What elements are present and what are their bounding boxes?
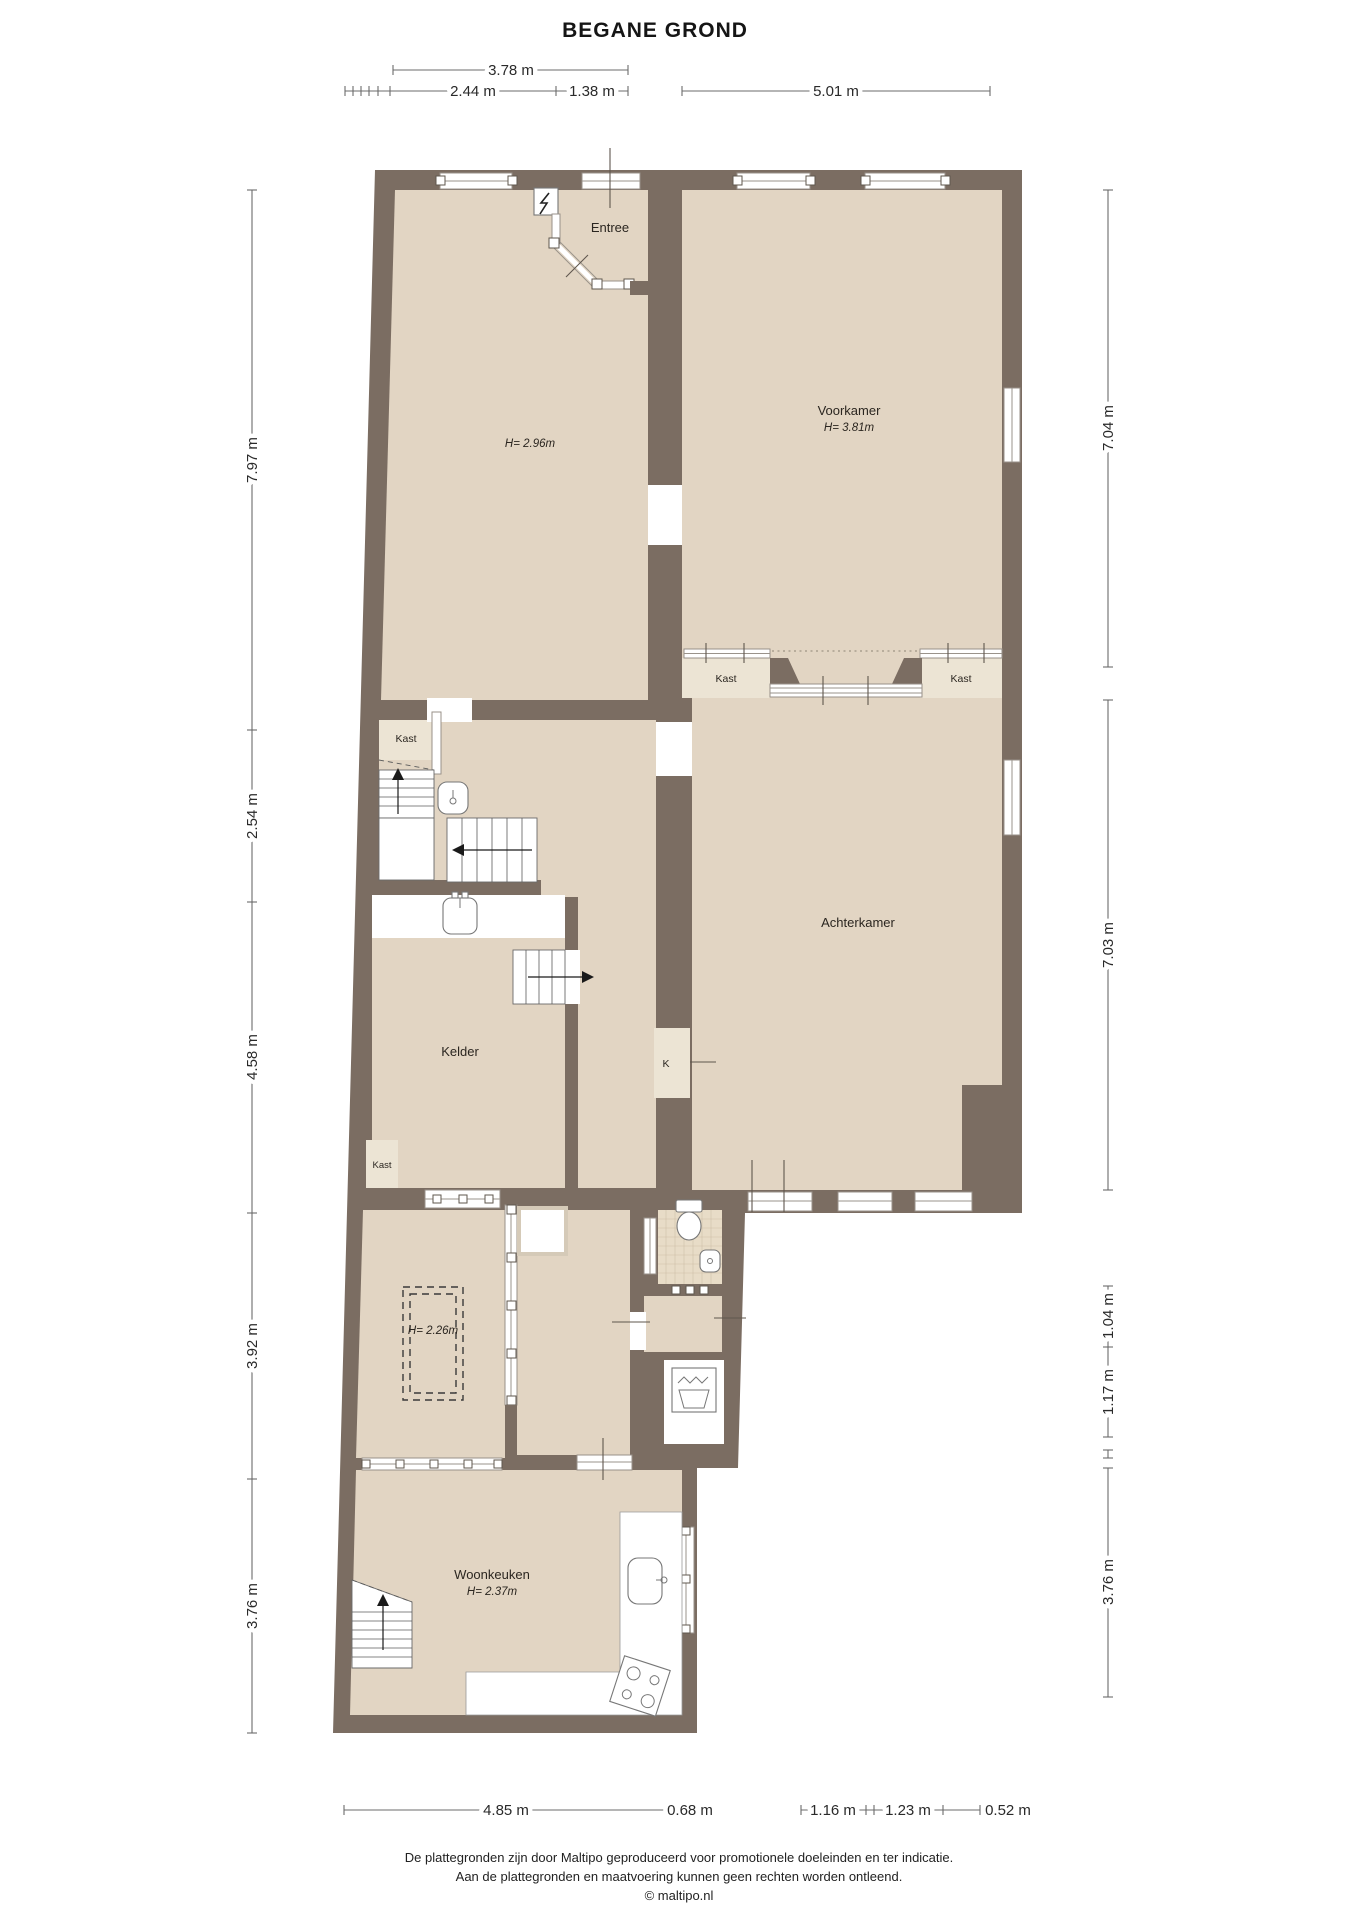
floorplan-page: Entree Voorkamer H= 3.81m H= 2.96m Achte…	[0, 0, 1358, 1920]
achterkamer-door-opening	[656, 722, 692, 776]
floorplan-canvas: Entree Voorkamer H= 3.81m H= 2.96m Achte…	[0, 0, 1358, 1920]
footer: De plattegronden zijn door Maltipo gepro…	[405, 1850, 954, 1903]
entree-wall-stub	[630, 281, 648, 295]
ensuite-sliding-band	[770, 684, 922, 697]
voorkamer-height-label: H= 3.81m	[824, 422, 875, 434]
page-title: BEGANE GROND	[562, 19, 748, 42]
dim-top-total: 3.78 m	[488, 62, 534, 79]
achterkamer-label: Achterkamer	[821, 915, 895, 930]
back-corridor-vide	[519, 1208, 566, 1254]
dims-right: 7.04 m 7.03 m 1.04 m 1.17 m 3.76 m	[1100, 190, 1117, 1697]
dim-left-5: 3.76 m	[244, 1583, 261, 1629]
closet-hall-label: Kast	[395, 733, 416, 745]
hall-glass-door	[432, 712, 441, 774]
dim-bottom-5: 0.52 m	[985, 1802, 1031, 1819]
achterkamer-floor	[692, 697, 1002, 1190]
dim-bottom-3: 1.16 m	[810, 1802, 856, 1819]
dims-bottom: 4.85 m 0.68 m 1.16 m 1.23 m 0.52 m	[344, 1802, 1031, 1819]
footer-line-1: De plattegronden zijn door Maltipo gepro…	[405, 1850, 954, 1865]
passage-floor	[644, 1296, 722, 1352]
hall-stair	[379, 770, 434, 818]
dim-right-3: 1.04 m	[1100, 1293, 1117, 1339]
dim-top-1: 2.44 m	[450, 83, 496, 100]
dim-left-4: 3.92 m	[244, 1323, 261, 1369]
partition-wall-stub	[505, 1405, 517, 1458]
front-room-height-label: H= 2.96m	[505, 438, 556, 450]
closet-k-label: K	[662, 1058, 669, 1070]
voorkamer-label: Voorkamer	[818, 403, 882, 418]
hall-stair-landing	[379, 818, 434, 880]
dim-bottom-4: 1.23 m	[885, 1802, 931, 1819]
meter-cabinet	[534, 188, 558, 215]
dim-left-1: 7.97 m	[244, 437, 261, 483]
dim-top-2: 1.38 m	[569, 83, 615, 100]
entree-label: Entree	[591, 220, 629, 235]
dim-left-2: 2.54 m	[244, 793, 261, 839]
kelder-label: Kelder	[441, 1044, 479, 1059]
footer-line-3: © maltipo.nl	[645, 1888, 714, 1903]
dim-bottom-2: 0.68 m	[667, 1802, 713, 1819]
woonkeuken-height-label: H= 2.37m	[467, 1586, 518, 1598]
dim-right-5: 3.76 m	[1100, 1559, 1117, 1605]
dim-right-2: 7.03 m	[1100, 922, 1117, 968]
closet-kelder-label: Kast	[372, 1160, 391, 1171]
dim-right-4: 1.17 m	[1100, 1369, 1117, 1415]
chimney-block	[962, 1085, 1002, 1190]
closet-ensuite-right-label: Kast	[950, 673, 971, 685]
closet-ensuite-left-label: Kast	[715, 673, 736, 685]
dim-left-3: 4.58 m	[244, 1034, 261, 1080]
back-room-height-label: H= 2.26m	[408, 1325, 459, 1337]
kitchen-sink	[628, 1558, 662, 1604]
woonkeuken-label: Woonkeuken	[454, 1567, 530, 1582]
toilet-hand-basin	[700, 1250, 720, 1272]
footer-line-2: Aan de plattegronden en maatvoering kunn…	[456, 1869, 903, 1884]
passage-door-opening	[630, 1312, 646, 1350]
dim-top-3: 5.01 m	[813, 83, 859, 100]
voorkamer-door-opening	[648, 485, 682, 545]
dims-left: 7.97 m 2.54 m 4.58 m 3.92 m 3.76 m	[244, 190, 261, 1733]
hall-corridor-connector	[541, 878, 656, 897]
dim-bottom-1: 4.85 m	[483, 1802, 529, 1819]
toilet-tank	[676, 1200, 702, 1212]
toilet-bowl	[677, 1212, 701, 1240]
corridor-floor	[578, 895, 656, 1188]
dim-right-1: 7.04 m	[1100, 405, 1117, 451]
closet-k	[654, 1028, 690, 1098]
dims-top: 3.78 m 2.44 m 1.38 m 5.01 m	[345, 62, 990, 100]
